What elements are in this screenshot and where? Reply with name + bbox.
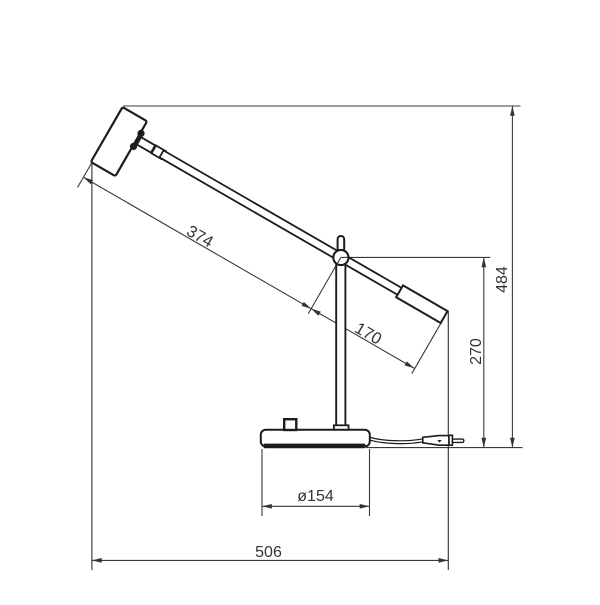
svg-text:484: 484 <box>494 266 511 293</box>
svg-text:506: 506 <box>255 544 282 561</box>
svg-text:170: 170 <box>352 319 385 348</box>
svg-text:270: 270 <box>468 338 485 365</box>
svg-text:ø154: ø154 <box>297 488 334 505</box>
svg-text:374: 374 <box>183 222 216 251</box>
